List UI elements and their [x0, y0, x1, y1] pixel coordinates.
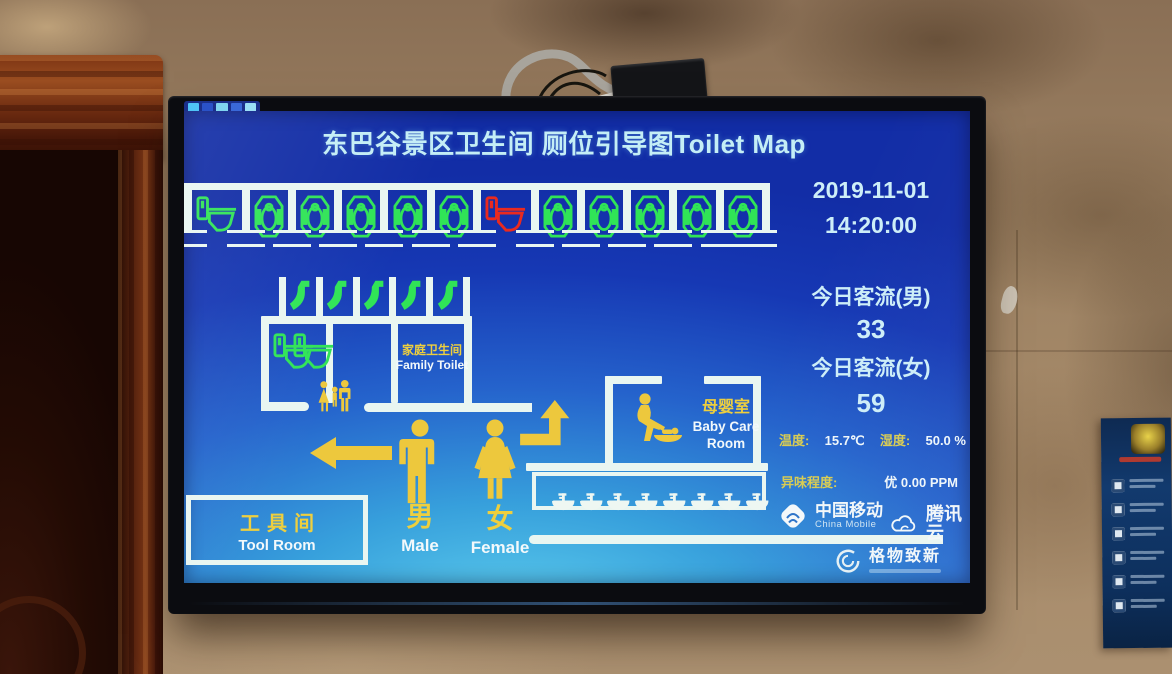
toilet-stall-free	[334, 190, 380, 230]
wall-segment	[262, 316, 472, 324]
wall-segment	[261, 402, 309, 411]
photo-of-signage-tv: 东巴谷景区卫生间 厕位引导图Toilet Map 家庭卫生间	[0, 0, 1172, 674]
temperature-label: 温度:	[779, 430, 809, 449]
china-mobile-icon	[778, 501, 808, 531]
toilet-stall-free	[669, 190, 715, 230]
cloud-icon	[888, 511, 919, 537]
wall-segment	[605, 376, 613, 471]
gewu-subtitle-bar	[869, 569, 941, 573]
toilet-stall-free	[288, 190, 334, 230]
humidity-label: 湿度:	[880, 430, 910, 449]
toilet-stall-free	[242, 190, 288, 230]
baby-room-label-zh: 母婴室	[687, 398, 765, 418]
toilet-stall-occupied	[473, 190, 531, 230]
left-arrow-icon	[310, 435, 392, 471]
tool-room-label-zh: 工具间	[233, 507, 321, 536]
wall-segment	[261, 316, 269, 410]
toilet-stall-free	[716, 190, 762, 230]
family-icon	[316, 379, 364, 419]
tool-room: 工具间 Tool Room	[186, 495, 368, 565]
poster-logo	[1131, 424, 1165, 454]
poster-title-bar	[1119, 457, 1161, 462]
odor-label: 异味程度:	[781, 472, 837, 491]
male-flow-value: 33	[776, 314, 966, 345]
stall-row	[184, 183, 770, 230]
gewu-zhixin-logo: 格物致新	[834, 547, 941, 575]
page-title: 东巴谷景区卫生间 厕位引导图Toilet Map	[184, 124, 970, 161]
male-label-zh: 男	[389, 501, 451, 535]
poster-row	[1112, 551, 1164, 565]
wood-door-panel	[0, 150, 118, 674]
odor-row: 异味程度: 优 0.00 PPM	[779, 472, 966, 491]
odor-value: 优 0.00 PPM	[884, 472, 958, 491]
humidity-value: 50.0 %	[925, 433, 965, 448]
wood-door-frame-side	[117, 150, 163, 674]
male-icon	[394, 419, 446, 507]
wall-segment	[526, 463, 768, 471]
female-label-zh: 女	[472, 503, 528, 537]
poster-icon	[1112, 551, 1125, 564]
wall-segment	[529, 535, 943, 544]
toilet-stall-free	[427, 190, 473, 230]
urinal-row	[279, 277, 470, 320]
up-arrow-icon	[520, 399, 580, 453]
wall-poster	[1101, 418, 1172, 649]
china-mobile-logo: 中国移动 China Mobile	[778, 501, 883, 531]
toilet-stall-free	[184, 190, 242, 230]
poster-row	[1113, 599, 1165, 613]
toilet-stall-free	[531, 190, 577, 230]
wall-seam	[1016, 230, 1018, 610]
wall-segment	[605, 376, 662, 384]
date-text: 2019-11-01	[776, 177, 966, 204]
toilet-stall-free	[623, 190, 669, 230]
environment-row: 温度: 15.7℃ 湿度: 50.0 %	[779, 430, 966, 449]
china-mobile-en: China Mobile	[815, 519, 883, 530]
baby-room-label-en: Baby Care Room	[683, 419, 769, 453]
wall-segment	[364, 403, 532, 412]
poster-icon	[1112, 503, 1125, 516]
family-toilet-label: 家庭卫生间 Family Toilet	[394, 343, 470, 373]
gewu-zhixin-text: 格物致新	[869, 549, 941, 566]
urinal-free	[316, 277, 353, 320]
china-mobile-zh: 中国移动	[815, 502, 883, 520]
poster-row	[1112, 575, 1164, 589]
poster-row	[1112, 527, 1164, 541]
urinal-free	[279, 277, 316, 320]
female-flow-value: 59	[776, 388, 966, 419]
poster-icon	[1111, 479, 1124, 492]
poster-icon	[1112, 575, 1125, 588]
tencent-cloud-text: 腾讯云	[926, 505, 970, 543]
signage-screen: 东巴谷景区卫生间 厕位引导图Toilet Map 家庭卫生间	[184, 111, 970, 583]
wall-seam	[985, 350, 1172, 352]
urinal-free	[353, 277, 390, 320]
time-text: 14:20:00	[776, 212, 966, 239]
female-icon	[466, 419, 524, 509]
female-flow-label: 今日客流(女)	[776, 352, 966, 382]
swirl-icon	[834, 547, 862, 575]
toilet-stall-free	[380, 190, 426, 230]
female-label-en: Female	[463, 537, 537, 558]
poster-row	[1112, 503, 1164, 517]
toilet-stall-free	[577, 190, 623, 230]
poster-icon	[1112, 527, 1125, 540]
wood-door-frame-top	[0, 55, 163, 159]
baby-care-icon	[630, 391, 686, 455]
temperature-value: 15.7℃	[825, 433, 865, 449]
male-flow-label: 今日客流(男)	[776, 281, 966, 311]
tool-room-label-en: Tool Room	[238, 537, 315, 554]
sink-row	[532, 472, 766, 510]
male-label-en: Male	[389, 535, 451, 556]
tencent-cloud-logo: 腾讯云	[888, 505, 970, 543]
signage-tv: 东巴谷景区卫生间 厕位引导图Toilet Map 家庭卫生间	[168, 96, 986, 614]
poster-row	[1111, 479, 1163, 493]
poster-icon	[1113, 599, 1126, 612]
urinal-free	[426, 277, 463, 320]
urinal-free	[389, 277, 426, 320]
